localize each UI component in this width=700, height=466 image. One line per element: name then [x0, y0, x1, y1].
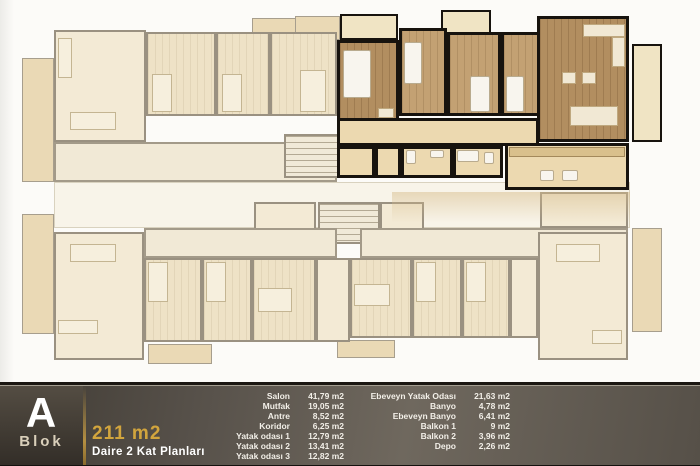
- faded-bed-3: [300, 70, 326, 112]
- room-area: 3,96 m2: [456, 431, 510, 441]
- faded-bed-2: [222, 74, 242, 112]
- salon-armchair-2: [582, 72, 596, 84]
- room-area: 41,79 m2: [290, 391, 344, 401]
- master-dresser: [378, 108, 394, 118]
- salon-sofa-horizontal: [583, 24, 625, 37]
- floor-plan-page: A Blok 211 m2 Daire 2 Kat Planları Salon…: [0, 0, 700, 466]
- highlight-antre: [337, 118, 539, 146]
- bed-1: [404, 42, 422, 84]
- room-name: Yatak odası 3: [150, 451, 290, 461]
- banyo-sink: [430, 150, 444, 158]
- table-row: Banyo4,78 m2: [352, 401, 510, 411]
- faded-bed-1: [152, 74, 172, 112]
- room-area: 21,63 m2: [456, 391, 510, 401]
- faded-dining-table-br: [556, 244, 600, 262]
- faded-dining-table-bl: [70, 244, 116, 262]
- room-area-table-col1: Salon41,79 m2 Mutfak19,05 m2 Antre8,52 m…: [150, 391, 344, 461]
- faded-bath-bl: [316, 258, 350, 342]
- balcony-bottom-2: [337, 340, 395, 358]
- balcony-left-top: [22, 58, 54, 182]
- highlight-reflection: [392, 192, 630, 226]
- bed-2: [470, 76, 490, 112]
- faded-bed-br-2: [416, 262, 436, 302]
- faded-sofa: [58, 38, 72, 78]
- highlight-balcony-top: [340, 14, 398, 40]
- ebeveyn-banyo-tub: [457, 150, 479, 162]
- highlight-koridor: [375, 146, 401, 178]
- table-row: Mutfak19,05 m2: [150, 401, 344, 411]
- block-name: Blok: [0, 433, 83, 450]
- room-area: 13,41 m2: [290, 441, 344, 451]
- block-letter: A: [0, 391, 83, 435]
- faded-bed-br-1: [354, 284, 390, 306]
- table-row: Yatak odası 112,79 m2: [150, 431, 344, 441]
- room-name: Yatak odası 2: [150, 441, 290, 451]
- faded-bed-bl-3: [258, 288, 292, 312]
- ebeveyn-banyo-toilet: [484, 152, 494, 164]
- room-name: Balkon 1: [352, 421, 456, 431]
- salon-sofa-vertical: [612, 37, 625, 67]
- table-row: Balkon 19 m2: [352, 421, 510, 431]
- room-area: 6,41 m2: [456, 411, 510, 421]
- room-name: Salon: [150, 391, 290, 401]
- room-area: 4,78 m2: [456, 401, 510, 411]
- banyo-toilet: [406, 150, 416, 164]
- room-area: 8,52 m2: [290, 411, 344, 421]
- faded-sofa-br: [592, 330, 622, 344]
- info-bar: A Blok 211 m2 Daire 2 Kat Planları Salon…: [0, 382, 700, 466]
- highlight-depo: [337, 146, 375, 178]
- room-name: Balkon 2: [352, 431, 456, 441]
- gold-divider: [83, 386, 86, 465]
- salon-dining-table: [570, 106, 618, 126]
- faded-bath-br: [510, 258, 538, 338]
- faded-hall-bottom-left: [144, 228, 337, 258]
- faded-dining-table: [70, 112, 116, 130]
- mutfak-appliance-1: [540, 170, 554, 181]
- table-row: Yatak odası 213,41 m2: [150, 441, 344, 451]
- room-area: 12,82 m2: [290, 451, 344, 461]
- floor-plan-canvas: [0, 0, 700, 382]
- room-name: Depo: [352, 441, 456, 451]
- salon-armchair-1: [562, 72, 576, 84]
- bed-3: [506, 76, 524, 112]
- faded-bed-bl-1: [148, 262, 168, 302]
- room-name: Ebeveyn Yatak Odası: [352, 391, 456, 401]
- balcony-left-bottom: [22, 214, 54, 334]
- highlight-balkon-1: [632, 44, 662, 142]
- room-area: 12,79 m2: [290, 431, 344, 441]
- stairwell-top: [284, 134, 344, 178]
- room-area: 6,25 m2: [290, 421, 344, 431]
- block-badge: A Blok: [0, 386, 83, 465]
- room-area-table-col2: Ebeveyn Yatak Odası21,63 m2 Banyo4,78 m2…: [352, 391, 510, 451]
- faded-sofa-bl: [58, 320, 98, 334]
- table-row: Yatak odası 312,82 m2: [150, 451, 344, 461]
- master-bed: [343, 50, 371, 98]
- room-area: 9 m2: [456, 421, 510, 431]
- room-name: Mutfak: [150, 401, 290, 411]
- mutfak-counter: [509, 147, 625, 157]
- table-row: Depo2,26 m2: [352, 441, 510, 451]
- bar-top-highlight-line: [0, 385, 700, 386]
- table-row: Ebeveyn Banyo6,41 m2: [352, 411, 510, 421]
- mutfak-appliance-2: [562, 170, 578, 181]
- table-row: Salon41,79 m2: [150, 391, 344, 401]
- table-row: Ebeveyn Yatak Odası21,63 m2: [352, 391, 510, 401]
- room-name: Banyo: [352, 401, 456, 411]
- faded-bed-bl-2: [206, 262, 226, 302]
- room-name: Koridor: [150, 421, 290, 431]
- room-name: Yatak odası 1: [150, 431, 290, 441]
- table-row: Koridor6,25 m2: [150, 421, 344, 431]
- balcony-bottom-1: [148, 344, 212, 364]
- room-area: 2,26 m2: [456, 441, 510, 451]
- table-row: Antre8,52 m2: [150, 411, 344, 421]
- room-area: 19,05 m2: [290, 401, 344, 411]
- balcony-right-bottom: [632, 228, 662, 332]
- faded-bed-br-3: [466, 262, 486, 302]
- room-name: Antre: [150, 411, 290, 421]
- room-name: Ebeveyn Banyo: [352, 411, 456, 421]
- table-row: Balkon 23,96 m2: [352, 431, 510, 441]
